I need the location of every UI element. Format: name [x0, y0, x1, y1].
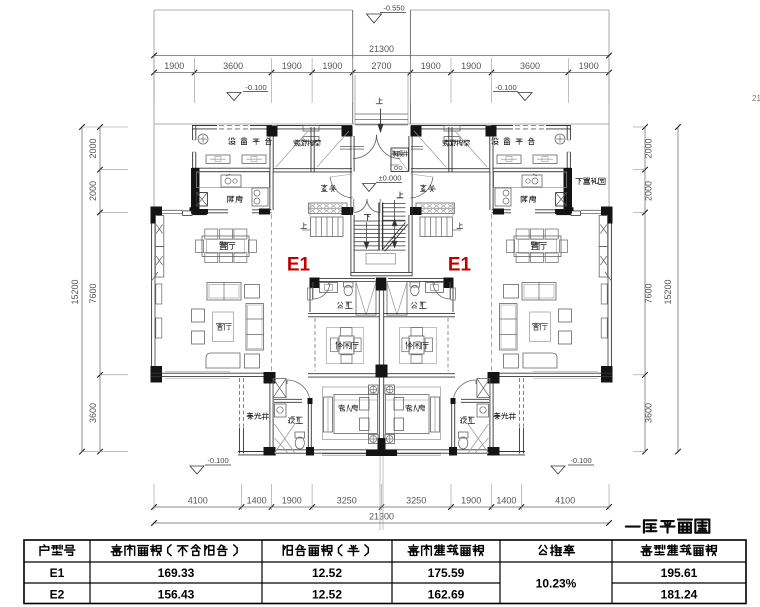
svg-text:3250: 3250	[406, 496, 426, 506]
svg-text:2000: 2000	[644, 138, 654, 158]
svg-text:7600: 7600	[644, 283, 654, 303]
svg-text:E2: E2	[50, 588, 65, 602]
svg-text:2000: 2000	[88, 181, 98, 201]
svg-text:-0.100: -0.100	[570, 456, 591, 465]
svg-text:21300: 21300	[369, 44, 394, 54]
svg-text:2130: 2130	[752, 94, 760, 103]
svg-text:3600: 3600	[520, 61, 540, 71]
svg-text:169.33: 169.33	[158, 566, 195, 580]
svg-text:-0.100: -0.100	[207, 456, 228, 465]
svg-text:181.24: 181.24	[661, 588, 698, 602]
svg-text:1900: 1900	[322, 61, 342, 71]
svg-text:1900: 1900	[461, 61, 481, 71]
svg-text:-0.100: -0.100	[495, 83, 516, 92]
svg-text:15200: 15200	[70, 279, 80, 304]
svg-text:-0.100: -0.100	[245, 83, 266, 92]
svg-text:10.23%: 10.23%	[536, 577, 577, 591]
svg-text:±0.000: ±0.000	[379, 174, 402, 183]
svg-text:156.43: 156.43	[158, 588, 195, 602]
svg-text:195.61: 195.61	[661, 566, 698, 580]
svg-text:1900: 1900	[579, 61, 599, 71]
svg-text:3600: 3600	[644, 403, 654, 423]
svg-text:E1: E1	[50, 566, 65, 580]
svg-text:1900: 1900	[164, 61, 184, 71]
svg-text:2000: 2000	[88, 138, 98, 158]
svg-text:4100: 4100	[555, 496, 575, 506]
svg-text:1900: 1900	[421, 61, 441, 71]
svg-text:1900: 1900	[282, 496, 302, 506]
svg-text:21300: 21300	[369, 512, 394, 522]
svg-text:1400: 1400	[247, 496, 267, 506]
svg-text:12.52: 12.52	[312, 588, 342, 602]
svg-text:1900: 1900	[461, 496, 481, 506]
svg-text:3250: 3250	[337, 496, 357, 506]
svg-text:3600: 3600	[223, 61, 243, 71]
svg-text:2000: 2000	[644, 181, 654, 201]
svg-text:3600: 3600	[88, 403, 98, 423]
svg-text:1400: 1400	[496, 496, 516, 506]
svg-text:E1: E1	[287, 255, 311, 276]
svg-text:12.52: 12.52	[312, 566, 342, 580]
svg-text:E1: E1	[448, 255, 472, 276]
svg-text:15200: 15200	[663, 279, 673, 304]
svg-text:175.59: 175.59	[428, 566, 465, 580]
svg-text:-0.550: -0.550	[383, 4, 404, 13]
svg-text:7600: 7600	[88, 283, 98, 303]
svg-text:4100: 4100	[188, 496, 208, 506]
svg-text:1900: 1900	[282, 61, 302, 71]
svg-text:162.69: 162.69	[428, 588, 465, 602]
svg-text:2700: 2700	[371, 61, 391, 71]
